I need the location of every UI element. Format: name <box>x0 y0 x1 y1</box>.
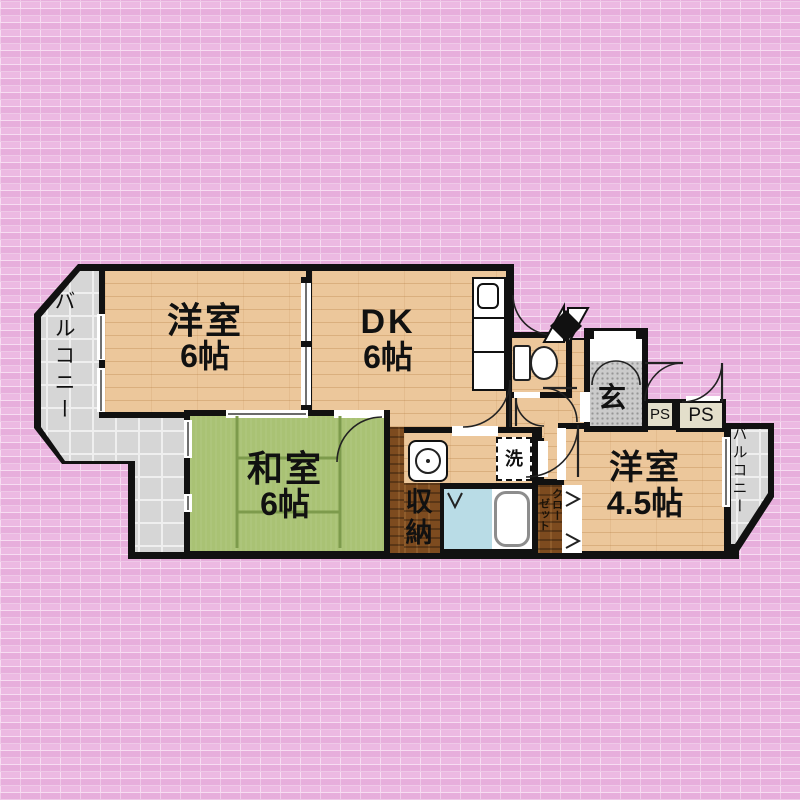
ps-left-door-arc <box>645 363 683 401</box>
dk-door-arc <box>463 380 510 427</box>
porch-door-arc <box>513 295 553 335</box>
ps-right-door-arc <box>682 363 722 402</box>
hall-entrance-door-arc <box>543 388 577 422</box>
room-dk-name: DK <box>360 305 415 341</box>
label-closet-right-column: クロー <box>550 488 563 552</box>
label-balcony-right: バルコニー <box>727 426 751 534</box>
front-door-icon <box>544 306 588 344</box>
room-western-45-name: 洋室 <box>609 451 681 487</box>
label-room-dk: DK 6帖 <box>318 298 458 382</box>
label-closet-left-column: ゼット <box>537 498 550 558</box>
label-room-japanese-6: 和室 6帖 <box>200 442 370 530</box>
room-western-6-size: 6帖 <box>180 340 230 374</box>
label-storage: 収納 <box>399 482 435 554</box>
label-room-western-45: 洋室 4.5帖 <box>570 440 720 532</box>
toilet-door-arc <box>516 398 544 426</box>
closet-label-left: ゼット <box>536 498 552 531</box>
balcony-left-label: バルコニー <box>48 290 78 425</box>
bath-drain-icon <box>448 493 462 507</box>
balcony-right-label: バルコニー <box>729 426 750 516</box>
entrance-label: 玄 <box>598 383 626 412</box>
storage-label: 収納 <box>398 487 437 549</box>
label-entrance: 玄 <box>588 380 636 416</box>
room-western-6-name: 洋室 <box>167 302 243 340</box>
room-japanese-6-name: 和室 <box>247 450 323 488</box>
room-japanese-6-size: 6帖 <box>260 488 310 522</box>
toilet-icon <box>514 346 557 380</box>
washbasin-icon <box>416 449 440 473</box>
floor-plan-canvas: PS PS 洗 <box>0 0 800 800</box>
room-dk-size: 6帖 <box>363 341 413 375</box>
room-western-45-size: 4.5帖 <box>607 487 684 521</box>
label-room-western-6: 洋室 6帖 <box>115 296 295 380</box>
floorplan-annotations <box>0 0 800 800</box>
label-balcony-left: バルコニー <box>50 290 76 455</box>
